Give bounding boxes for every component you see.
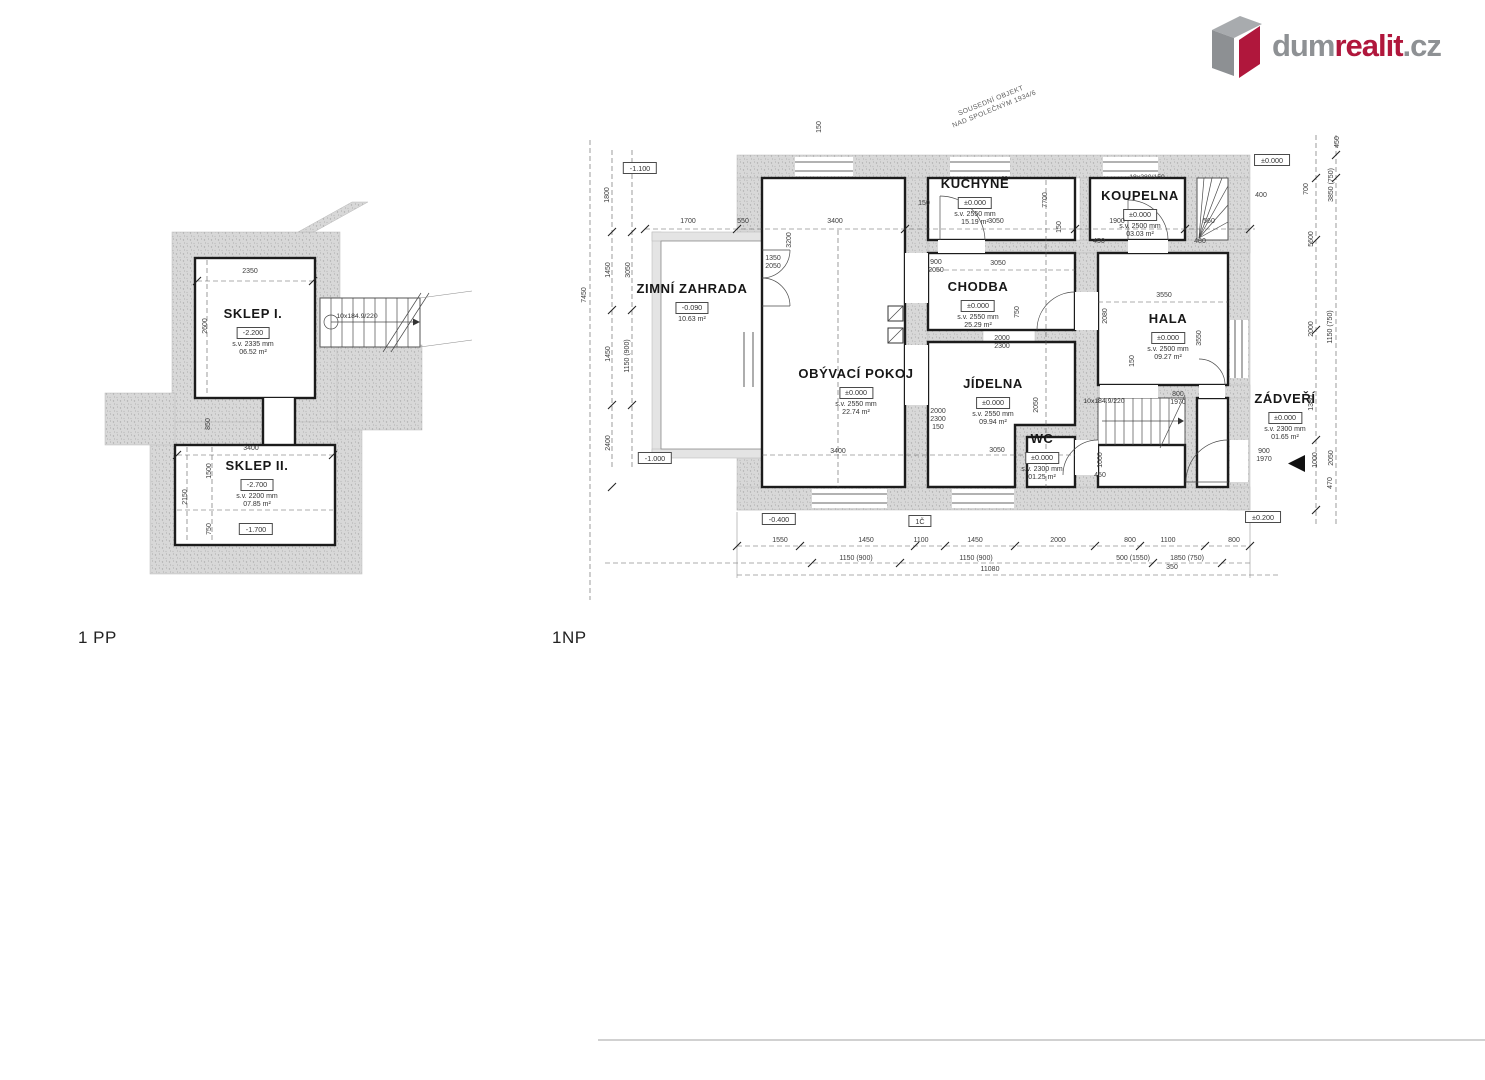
floorplan-drawing xyxy=(0,0,1485,1080)
logo-text-cz: .cz xyxy=(1403,28,1441,63)
dumrealit-logo-icon xyxy=(1206,12,1264,78)
floor-label-1pp: 1 PP xyxy=(78,628,117,648)
scanned-floorplan-page: SKLEP I.-2.200s.v. 2335 mm06.52 m²SKLEP … xyxy=(0,0,1485,1080)
ground-plan-drawing xyxy=(590,135,1340,600)
floor-label-1np: 1NP xyxy=(552,628,587,648)
dumrealit-logo-text: dumrealit.cz xyxy=(1272,30,1441,61)
dumrealit-logo: dumrealit.cz xyxy=(1206,12,1441,78)
logo-text-dum: dum xyxy=(1272,28,1334,63)
logo-text-realit: realit xyxy=(1334,28,1402,63)
scan-artifact-line xyxy=(598,1039,1485,1041)
entrance-arrow xyxy=(1288,455,1305,472)
basement-plan-drawing xyxy=(105,202,472,574)
